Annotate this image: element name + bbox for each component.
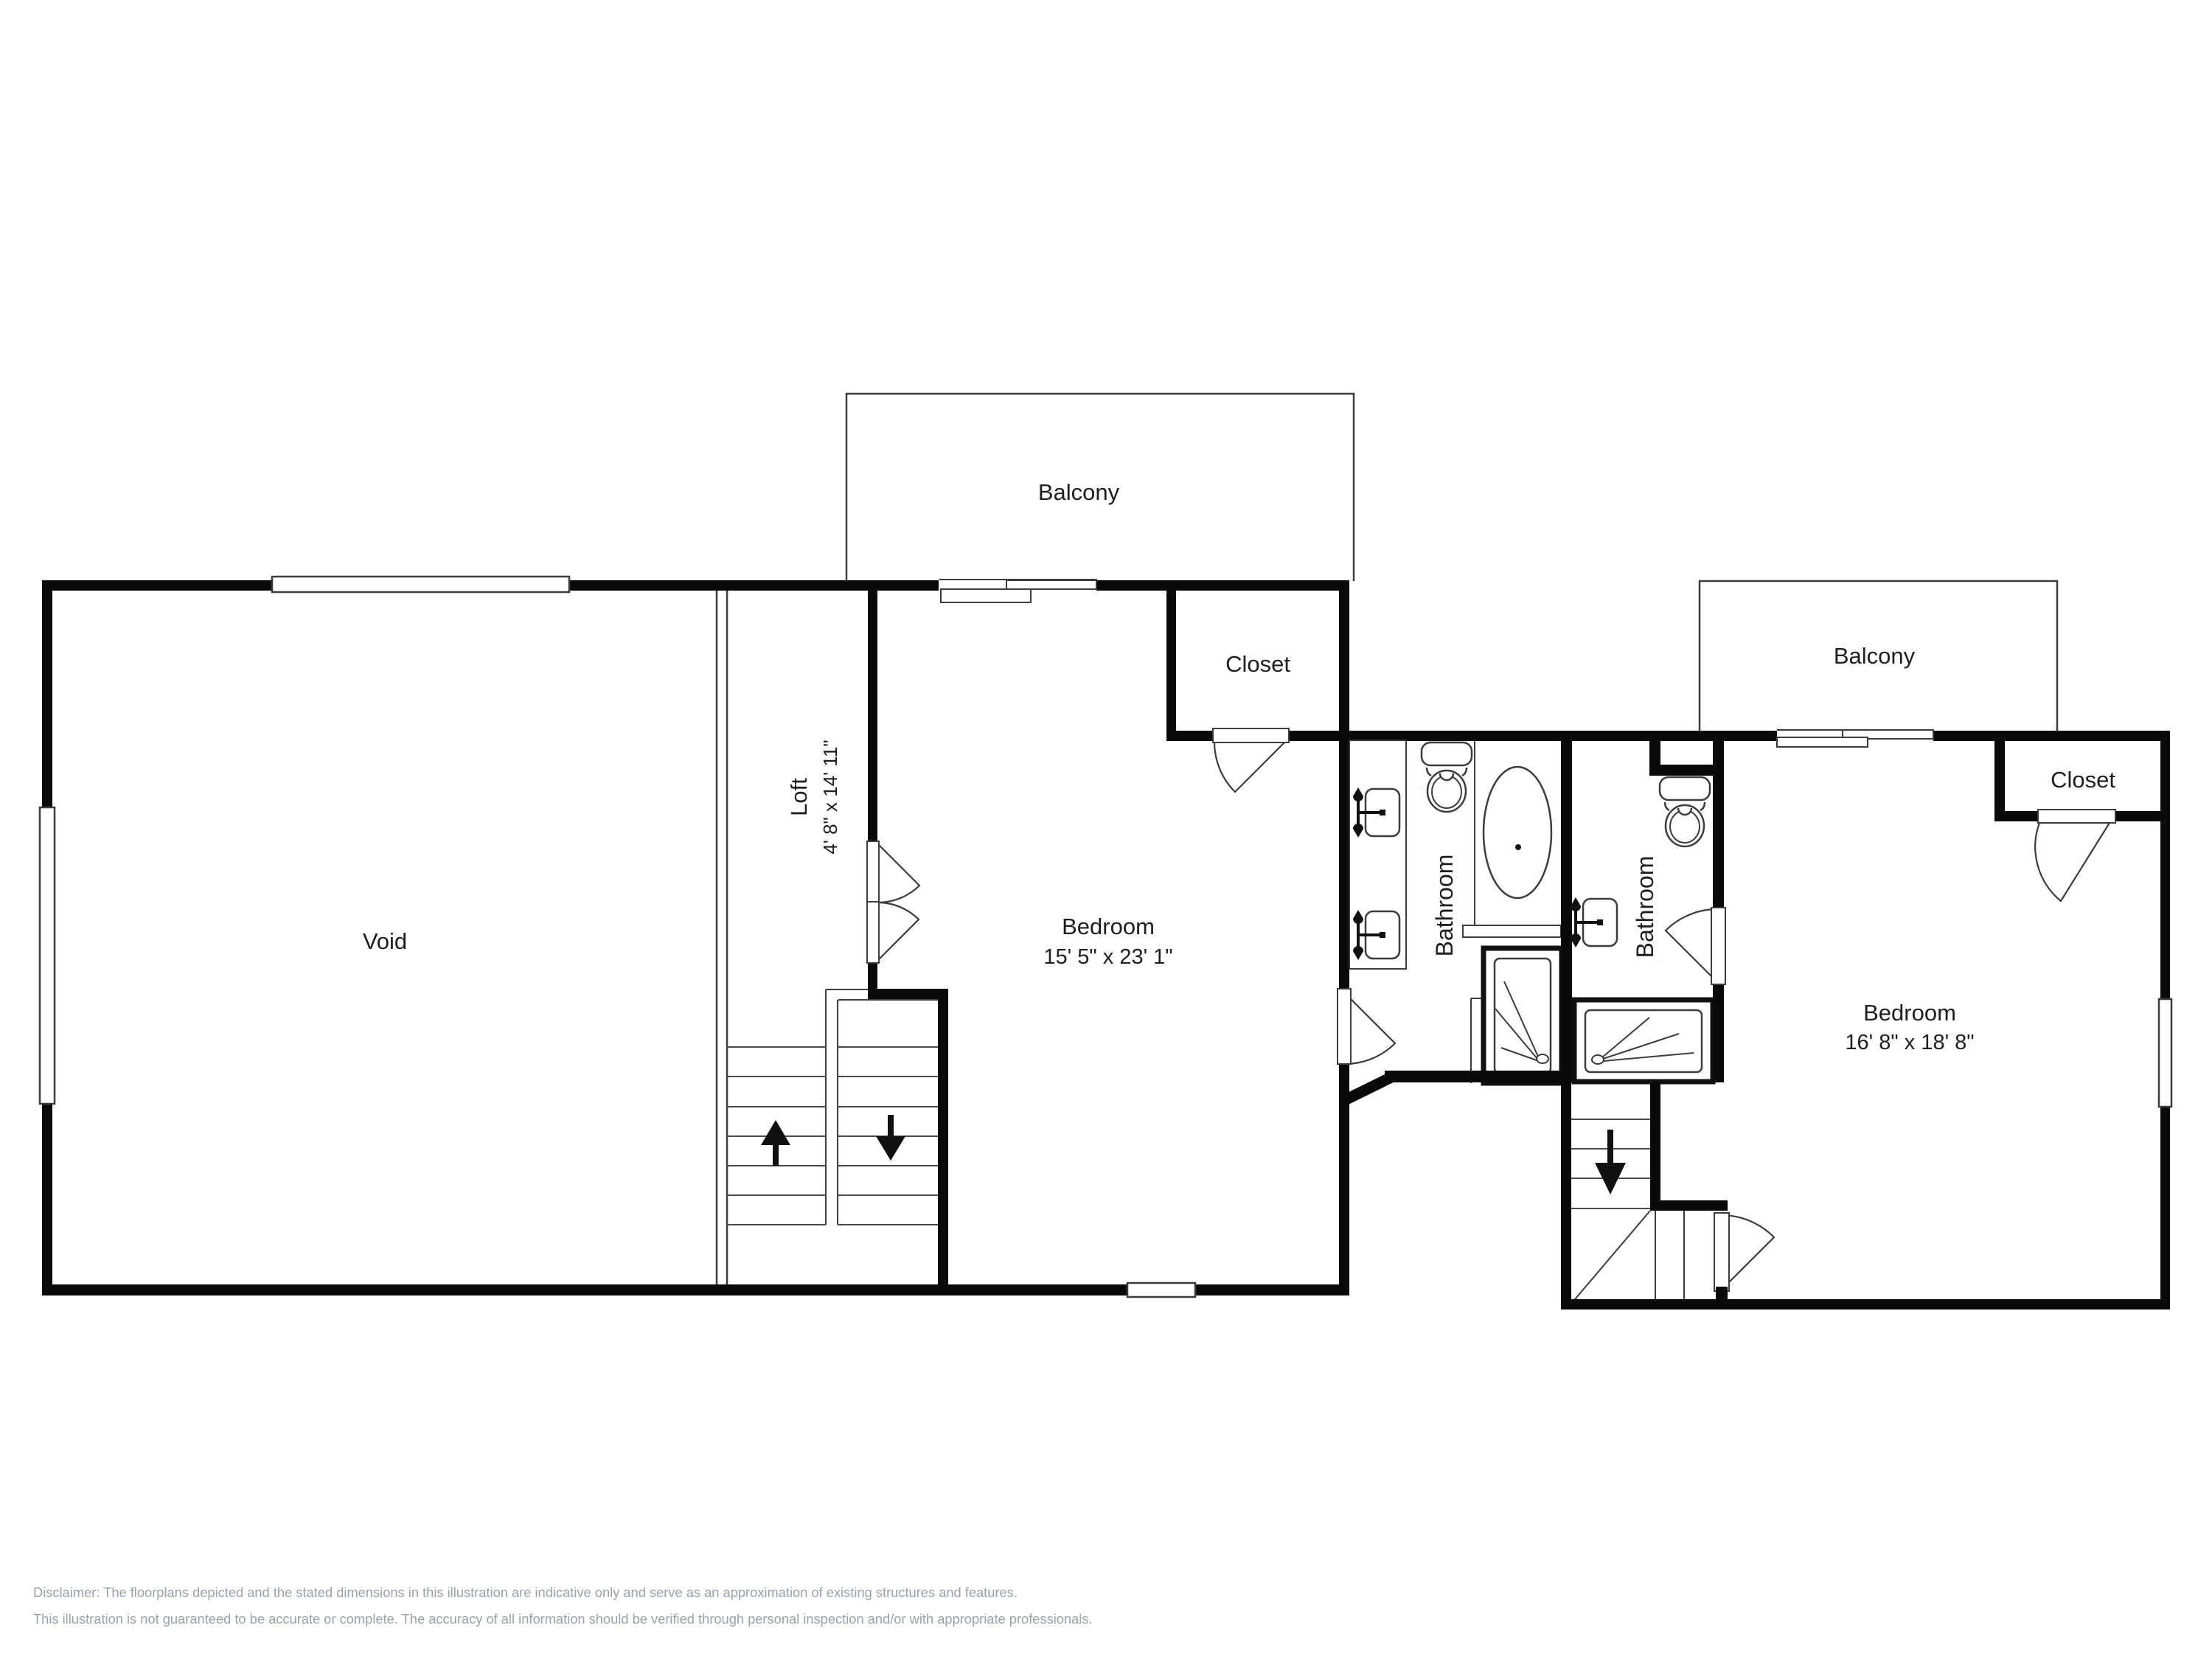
svg-text:Bathroom: Bathroom — [1431, 855, 1458, 957]
svg-text:Balcony: Balcony — [1038, 479, 1120, 505]
svg-text:Bathroom: Bathroom — [1632, 856, 1658, 959]
svg-text:This illustration is not guara: This illustration is not guaranteed to b… — [33, 1611, 1093, 1627]
svg-text:Loft: Loft — [786, 778, 812, 816]
svg-text:Closet: Closet — [2051, 767, 2115, 793]
svg-text:Bedroom: Bedroom — [1062, 914, 1155, 939]
svg-text:Disclaimer: The floorplans dep: Disclaimer: The floorplans depicted and … — [33, 1585, 1018, 1600]
svg-text:4' 8" x 14' 11": 4' 8" x 14' 11" — [819, 740, 841, 854]
svg-text:16' 8" x 18' 8": 16' 8" x 18' 8" — [1845, 1031, 1974, 1054]
svg-text:Balcony: Balcony — [1834, 643, 1916, 669]
svg-text:Bedroom: Bedroom — [1863, 1000, 1956, 1026]
svg-text:Closet: Closet — [1225, 651, 1290, 677]
svg-text:15' 5" x 23' 1": 15' 5" x 23' 1" — [1043, 945, 1172, 969]
svg-text:Void: Void — [363, 928, 407, 954]
